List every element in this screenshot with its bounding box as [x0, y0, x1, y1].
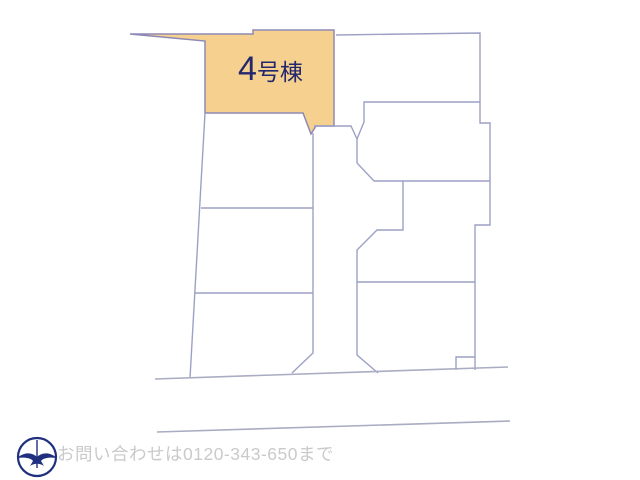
lot-boundary-line: [314, 126, 357, 139]
lot-boundary-line: [336, 33, 490, 370]
highlight-lot-shape[interactable]: [130, 30, 334, 134]
lot-boundary-line: [357, 181, 403, 373]
lot-boundary-line: [357, 102, 480, 181]
lot-boundary-line: [190, 113, 205, 378]
site-plan-svg: [0, 0, 640, 480]
highlight-lot-label[interactable]: 4号棟: [238, 52, 303, 86]
lot-boundary-line: [292, 133, 313, 373]
compass-icon: [14, 427, 60, 479]
plot-map-canvas: 4号棟 お問い合わせは0120-343-650まで: [0, 0, 640, 480]
highlight-lot-number: 4: [238, 52, 257, 86]
footer-bar: お問い合わせは0120-343-650まで: [0, 424, 640, 480]
highlight-lot-suffix: 号棟: [257, 61, 303, 84]
contact-text: お問い合わせは0120-343-650まで: [57, 441, 334, 466]
street-line: [155, 367, 508, 379]
